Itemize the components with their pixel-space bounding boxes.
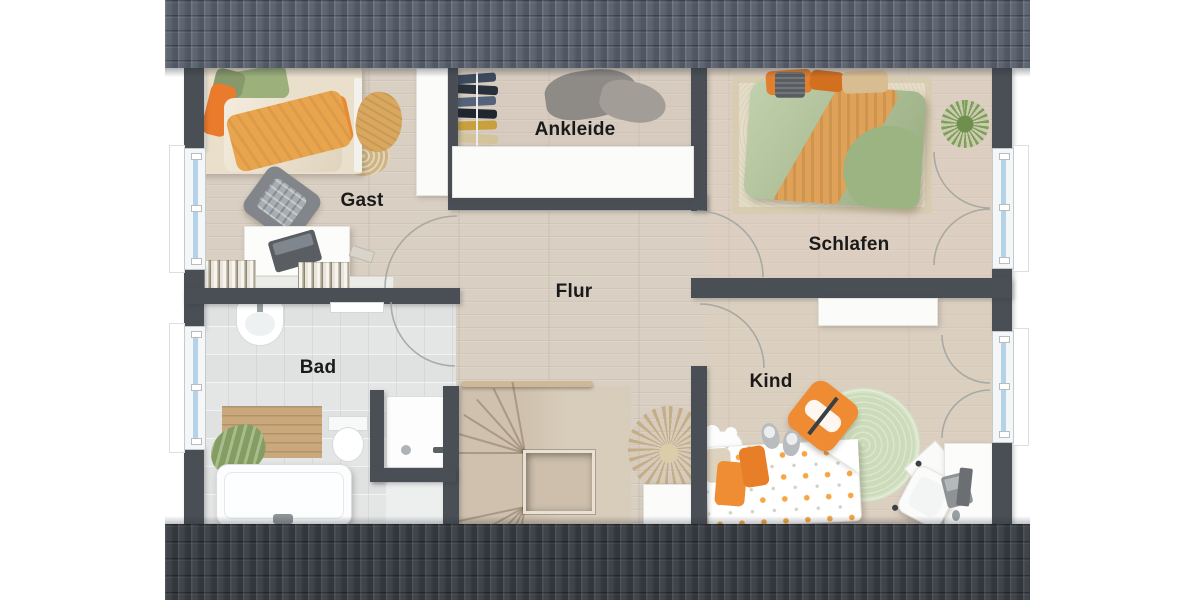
window-kind <box>992 331 1014 443</box>
garment <box>454 96 496 107</box>
window-handle <box>191 258 202 265</box>
wall-right <box>992 439 1012 524</box>
laptop-screen <box>272 233 314 256</box>
room-label-kind: Kind <box>749 371 792 393</box>
wall-left <box>184 68 204 150</box>
double-bed <box>741 80 929 208</box>
wall-kind-north <box>691 278 1012 298</box>
books-row <box>298 262 350 290</box>
window-sill <box>169 323 185 453</box>
wardrobe-column <box>416 68 448 196</box>
window-handle <box>191 438 202 445</box>
stair-tread <box>453 452 525 454</box>
bathtub-inner <box>224 472 344 519</box>
wall-right <box>992 266 1012 333</box>
window-handle <box>191 153 202 160</box>
guest-bed <box>198 68 362 174</box>
roof-top <box>165 0 1030 68</box>
room-label-ankleide: Ankleide <box>535 119 616 141</box>
garment <box>453 120 497 131</box>
basin-bowl <box>245 312 275 336</box>
armchair-cushion <box>255 176 309 229</box>
wall-right <box>992 68 1012 150</box>
room-label-gast: Gast <box>340 190 383 212</box>
staircase <box>459 386 631 524</box>
clothes-rail <box>476 72 478 152</box>
wall-stairs <box>443 386 459 524</box>
window-handle <box>191 384 202 391</box>
floorplan-rendering: Gast Ankleide Schlafen Flur Bad Kind <box>0 0 1200 600</box>
window-handle <box>999 257 1010 264</box>
window-bad <box>184 326 206 450</box>
stair-well <box>523 450 595 514</box>
window-handle <box>191 331 202 338</box>
room-label-bad: Bad <box>300 357 337 379</box>
window-handle <box>999 431 1010 438</box>
green-duvet <box>743 80 927 210</box>
window-handle <box>999 204 1010 211</box>
window-schlafen <box>992 148 1014 269</box>
wall-shower <box>370 468 456 482</box>
room-label-flur: Flur <box>556 281 593 303</box>
wall-left <box>184 446 204 524</box>
garment <box>452 133 498 144</box>
books-row <box>204 260 256 290</box>
window-gast <box>184 148 206 270</box>
kind-wardrobe <box>818 298 938 326</box>
basin-tap <box>257 303 263 312</box>
roof-bottom <box>165 524 1030 600</box>
room-label-schlafen: Schlafen <box>809 234 890 256</box>
toilet <box>328 416 366 460</box>
window-handle <box>999 153 1010 160</box>
window-handle <box>191 205 202 212</box>
toilet-bowl <box>332 427 364 462</box>
wall-gast-bad <box>184 288 460 304</box>
shower-drain <box>401 445 411 455</box>
window-handle <box>999 383 1010 390</box>
window-sill <box>169 145 185 273</box>
towel-shelf <box>330 302 384 313</box>
stair-handrail <box>461 381 593 387</box>
window-sill <box>1013 145 1029 272</box>
wall-kind-west <box>691 366 707 524</box>
ankleide-wardrobe <box>452 146 694 198</box>
window-handle <box>999 336 1010 343</box>
window-sill <box>1013 328 1029 446</box>
potted-plant <box>941 100 989 148</box>
